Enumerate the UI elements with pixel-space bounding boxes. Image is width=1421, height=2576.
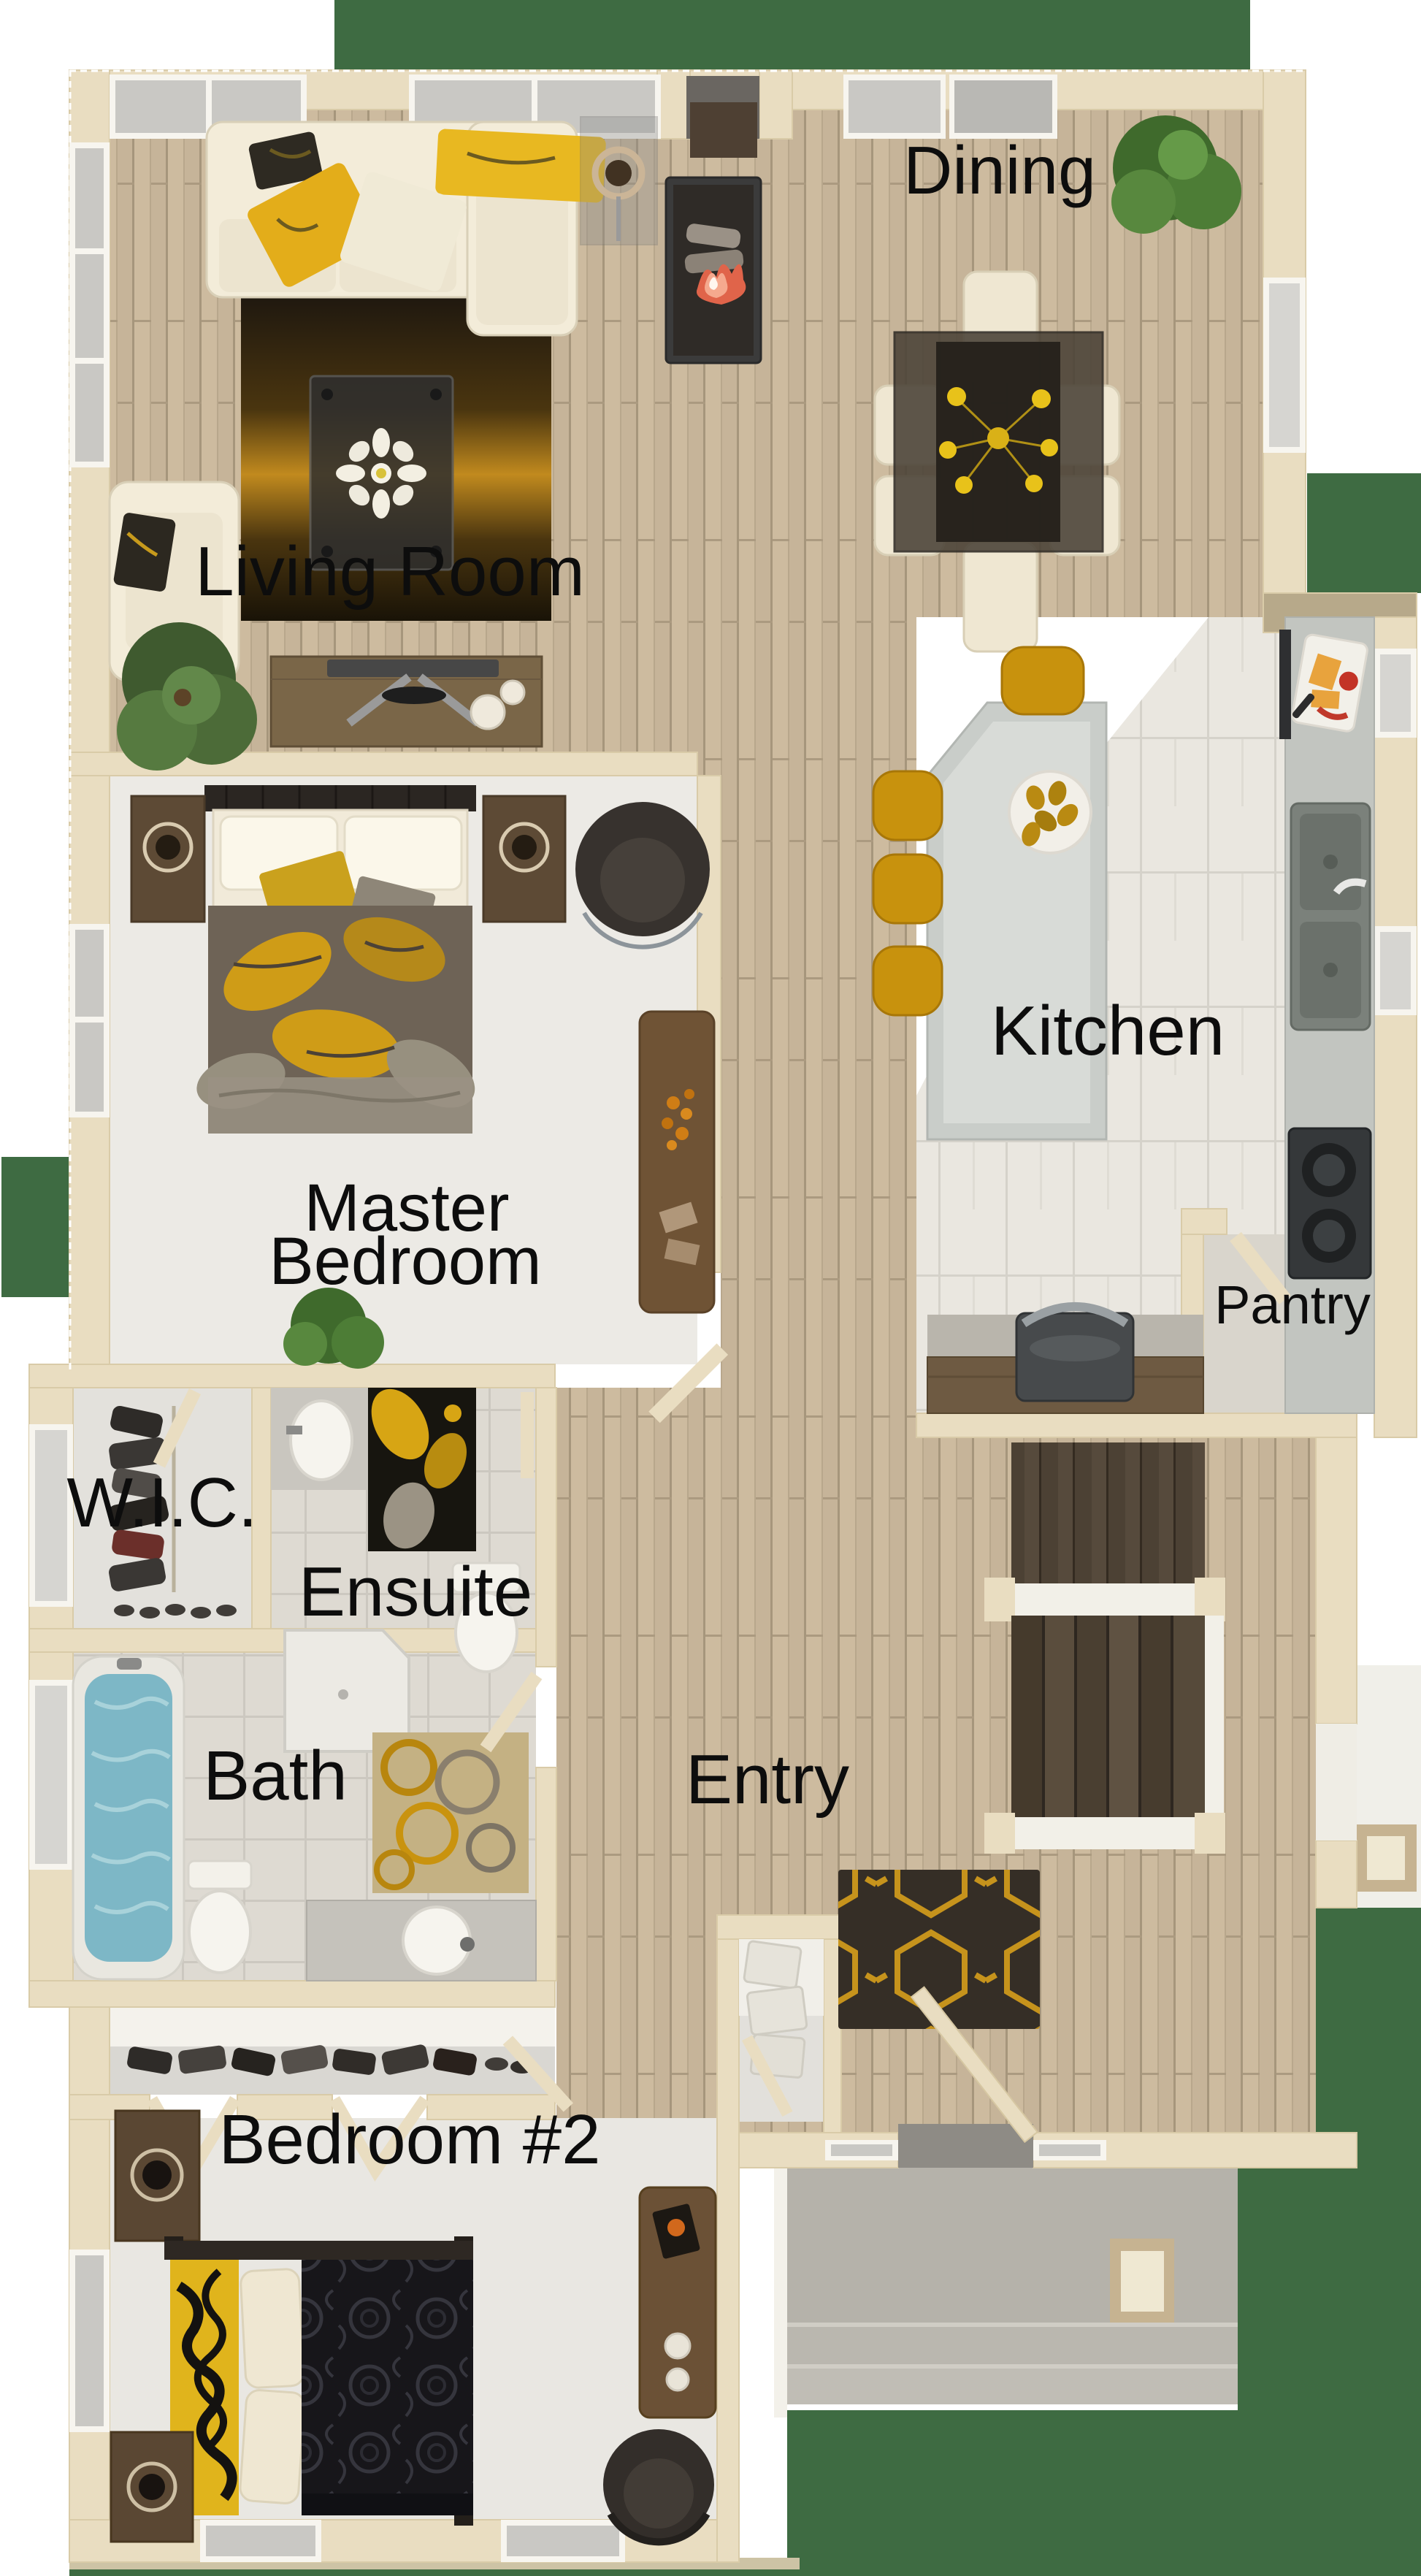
floorplan-svg: Living Room Dining [0,0,1421,2576]
dresser-cup-1 [665,2334,690,2358]
nightstand-master-left [131,796,204,922]
closet-box-1 [743,1941,801,1988]
room-label-wic: W.I.C. [66,1464,257,1542]
side-door-opening [1316,1724,1357,1841]
wall-below-kitchen [916,1413,1357,1437]
grass-bottom-strip [69,2569,800,2576]
patio-door-top [686,76,759,158]
porch-step-2 [787,2369,1238,2404]
countertop-appliance [1016,1307,1133,1401]
stairs-rail-top [987,1583,1224,1616]
decor-plate-1 [471,695,505,729]
stairs-post-bl [984,1813,1015,1854]
staircase [984,1442,1225,1854]
bed2 [164,2236,473,2526]
stairs-rail-bottom [987,1817,1224,1849]
porch-step-1 [787,2327,1238,2364]
stairs-post-tr [1195,1578,1225,1621]
window-kitchen-right-1 [1374,649,1417,738]
dining-table [895,332,1103,551]
bathtub [73,1656,184,1979]
bed2-black-duvet [302,2260,473,2515]
grass-below-porch [787,2410,1262,2576]
window-living-left [69,142,110,467]
tub-faucet [117,1658,142,1670]
wall-bedroom2-right [717,1939,739,2562]
wall-patio-door-left [657,70,690,139]
bedroom2-dresser [640,2187,716,2418]
garden-bed-left [0,1155,70,1299]
window-bath-left [29,1680,73,1870]
room-label-bath: Bath [203,1737,347,1815]
wall-right-lower-a [1316,1437,1357,1724]
window-bedroom2-left [69,2250,110,2432]
fridge-handles [1279,630,1291,739]
room-label-dining: Dining [903,132,1096,208]
wall-bath-hall [536,1767,556,1981]
tv-console [271,657,542,746]
kitchen-back-counter [927,1307,1203,1413]
master-duvet [191,906,486,1134]
bath-vanity [307,1900,536,1981]
room-label-kitchen: Kitchen [991,992,1225,1070]
bath-sink [403,1907,470,1974]
bedroom2-chair [603,2429,714,2542]
stove [1289,1128,1371,1278]
room-label-ensuite: Ensuite [299,1553,532,1631]
ensuite-door-leaf [521,1392,534,1478]
wall-ensuite-hall [536,1388,556,1667]
ensuite-faucet [286,1426,302,1434]
floor-closet-bedroom2 [110,2046,555,2095]
window-bedroom2-bottom-1 [200,2520,321,2562]
room-label-pantry: Pantry [1214,1274,1371,1335]
bath-faucet [460,1937,475,1952]
porch-edge-left [774,2168,787,2418]
bed2-pillow-2 [240,2389,305,2504]
window-dining-top-2 [949,74,1057,139]
wall-pantry-top-a [1181,1209,1227,1234]
dresser-cup-2 [667,2369,689,2390]
ensuite-rug [360,1379,476,1554]
window-bedroom2-bottom-2 [501,2520,625,2562]
ensuite-sink [291,1401,352,1480]
window-dining-right [1263,278,1306,453]
master-bench [640,1012,714,1312]
closet-shelf-bedroom2 [110,2007,555,2046]
bath-toilet [188,1861,251,1973]
porch-step-edge-1 [787,2323,1238,2327]
stairs-post-br [1195,1813,1225,1854]
stairs-rail-right [1205,1616,1224,1817]
room-label-living: Living Room [195,532,585,611]
nightstand-bed2-bottom [111,2432,193,2542]
master-bed [191,785,486,1134]
porch-step-edge-2 [787,2364,1238,2369]
room-label-bedroom2: Bedroom #2 [219,2101,601,2179]
grass-right-patch [1307,473,1421,593]
wall-bath-closet [29,1981,555,2007]
nightstand-master-right [483,796,565,922]
window-master-left [69,924,110,1117]
fireplace [666,177,761,363]
decor-plate-2 [501,681,524,704]
tv [327,660,499,677]
master-chair [575,802,710,947]
kitchen-island [927,703,1106,1139]
window-kitchen-right-2 [1374,926,1417,1015]
floorplan-canvas: Living Room Dining [0,0,1421,2576]
wall-master-wic [29,1364,555,1388]
kitchen-sink [1291,803,1370,1030]
wall-patio-door-right [759,70,792,139]
stairs-treads [1011,1616,1205,1817]
wall-right-lower-b [1316,1841,1357,1908]
room-label-entry: Entry [686,1740,849,1819]
stairs-upper-flight [1011,1442,1205,1583]
porch-column-cap [1121,2251,1164,2312]
stairs-post-tl [984,1578,1015,1621]
nightstand-bed2-top [115,2111,199,2241]
floor-hall [721,617,916,1437]
plate-of-pears [1009,771,1091,853]
wall-coatcloset-top [717,1915,841,1939]
wall-right-kitchen [1374,617,1417,1437]
closet-box-2 [747,1987,808,2036]
side-table-speaker [581,117,657,245]
side-porch-column-cap [1367,1836,1405,1880]
room-label-master-2: Bedroom [269,1224,541,1299]
bath-rug [372,1732,529,1893]
grass-top-strip [334,0,1250,74]
window-dining-top-1 [843,74,946,139]
bed2-pillow-1 [240,2269,304,2388]
